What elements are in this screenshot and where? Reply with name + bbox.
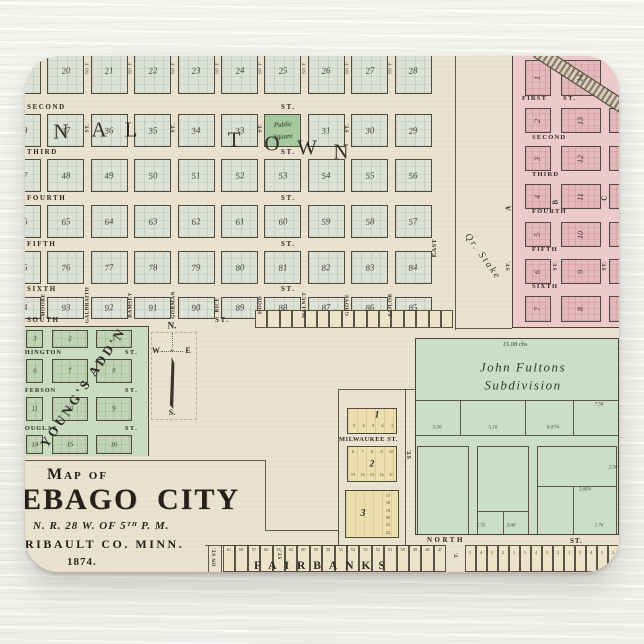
block-number: 55	[365, 171, 375, 181]
block-number: 14	[577, 74, 585, 82]
lot-number: 49	[413, 547, 417, 552]
measurement: 2.55	[477, 524, 486, 529]
street-width-note: 80 F	[215, 62, 221, 74]
block-number: 4	[534, 195, 542, 199]
block-number: 21	[104, 66, 114, 76]
street-label: SOUTH	[27, 317, 60, 324]
block-number: 59	[321, 217, 331, 227]
fultons-area-note: 15.08 chs	[503, 342, 528, 349]
lot-line	[503, 511, 504, 535]
boundary-line	[265, 460, 266, 530]
block-number: 2	[370, 460, 375, 469]
lot-number: 10	[389, 449, 393, 454]
block-number: 35	[148, 126, 158, 136]
block-number: 60	[278, 217, 288, 227]
fairbanks-label: FAIRBANKS	[254, 561, 393, 572]
street-suffix-vertical: ST.	[279, 551, 284, 560]
lot-number: 57	[252, 547, 256, 552]
north-street-label: NORTH	[427, 537, 465, 544]
lot-number: 4	[590, 550, 592, 555]
measurement: 2.50	[609, 466, 618, 471]
block-number: 1	[534, 76, 542, 80]
milwaukee-block	[345, 490, 399, 538]
compass-west-label: W	[152, 347, 160, 355]
block-number: 53	[278, 171, 288, 181]
block-number: 62	[191, 217, 201, 227]
block-number: 83	[365, 263, 375, 273]
lot-number: 14	[360, 472, 364, 477]
block-number: 2	[68, 335, 72, 342]
street-letter: A	[506, 205, 513, 211]
fultons-name-line2: Subdivision	[484, 379, 561, 392]
lot-number: 54	[351, 547, 355, 552]
street-letter: B	[553, 199, 560, 204]
street-label-vertical: GROVE	[345, 294, 350, 316]
town-block	[609, 259, 619, 284]
lot	[267, 310, 279, 328]
lot	[429, 310, 441, 328]
street-suffix-vertical: ST.	[172, 123, 178, 132]
block-number: 63	[148, 217, 158, 227]
street-width-note: 80 F	[389, 62, 395, 74]
street-width-note: 80 F	[128, 62, 134, 74]
block-number: 64	[104, 217, 114, 227]
lot	[329, 310, 341, 328]
lot-line	[525, 400, 526, 435]
lot-number: 52	[376, 547, 380, 552]
block-number: 65	[61, 217, 71, 227]
block-number: 79	[191, 263, 201, 273]
street-suffix: ST.	[281, 104, 296, 111]
measurement: 5.16	[489, 426, 498, 431]
lot-number: 66	[264, 547, 268, 552]
street-line	[208, 545, 209, 572]
lot-number: 6	[352, 449, 354, 454]
street-label-vertical: HOOD	[258, 296, 263, 314]
block-number: 2	[534, 119, 542, 123]
block-number: 20	[61, 66, 71, 76]
compass-north-label: N.	[168, 322, 177, 331]
street-letter: C	[602, 195, 609, 201]
street-label: FOURTH	[532, 209, 567, 216]
block-number: 3	[534, 157, 542, 161]
block-number: 26	[321, 66, 331, 76]
town-name-letter: O	[264, 134, 279, 155]
town-name-letter: N	[333, 142, 348, 163]
block-number: 29	[408, 126, 418, 136]
lot-number: 63	[289, 547, 293, 552]
lot-number: 7	[361, 449, 363, 454]
block-number: 1	[375, 411, 380, 420]
street-suffix-vertical: ST.	[407, 449, 413, 459]
street-suffix-vertical: ST.	[258, 123, 264, 132]
compass-east-label: E	[185, 347, 190, 355]
lot-number: 20	[386, 515, 390, 520]
lot-number: 12	[379, 472, 383, 477]
product-photo-background: N. W + E S. Qr. Stake YOUNG'S ADD'N 15.0…	[0, 0, 644, 644]
town-block	[609, 222, 619, 247]
block-number: 50	[148, 171, 158, 181]
lot-number: 59	[314, 547, 318, 552]
lot-number: 3	[601, 550, 603, 555]
lot-number: 47	[438, 547, 442, 552]
lot-line	[537, 486, 617, 487]
block-number: 28	[408, 66, 418, 76]
block-number: 75	[25, 263, 27, 273]
map-title-city-right: CITY	[157, 485, 240, 515]
street-label: HINGTON	[25, 350, 62, 356]
north-street-suffix: ST.	[570, 538, 583, 545]
street-label-vertical: SAILOR	[389, 293, 394, 316]
block-number: 16	[110, 441, 118, 449]
block-number: 10	[66, 405, 74, 413]
lot-number: 4	[535, 550, 537, 555]
lot-number: 2	[381, 423, 383, 428]
measurement: 6.07¾	[547, 426, 560, 431]
street-line	[221, 545, 222, 572]
town-block	[609, 184, 619, 209]
block-number: 34	[191, 126, 201, 136]
lot-number: 8	[371, 449, 373, 454]
boundary-line	[265, 530, 338, 531]
lot-number: 11	[389, 472, 393, 477]
compass-needle-line	[172, 333, 173, 347]
public-square-label: Public	[274, 121, 293, 129]
block-number: 58	[365, 217, 375, 227]
street-suffix: ST.	[281, 195, 296, 202]
block-number: 93	[61, 303, 71, 313]
block-number: 10	[577, 231, 585, 239]
street-width-note: 80 F	[258, 62, 264, 74]
street-suffix: ST.	[563, 96, 577, 103]
lot-number: 17	[386, 493, 390, 498]
street-label: OUGLAS	[25, 426, 57, 432]
lot-number: 4	[480, 550, 482, 555]
street-width-note: 80 F	[345, 62, 351, 74]
lot-number: 48	[425, 547, 429, 552]
street-line	[405, 389, 406, 545]
lot-line	[415, 400, 619, 401]
lot-number: 9	[380, 449, 382, 454]
lot-number: 2	[557, 550, 559, 555]
lot-number: 1	[391, 423, 393, 428]
block-number: 76	[61, 263, 71, 273]
block-number: 3	[361, 509, 366, 519]
lot-number: 5	[353, 423, 355, 428]
block-number: 8	[577, 307, 585, 311]
town-name-letter: A	[91, 120, 106, 141]
block-number: 27	[365, 66, 375, 76]
block-number: 89	[235, 303, 245, 313]
fulton-lot	[537, 446, 617, 535]
lot-number: 13	[370, 472, 374, 477]
street-suffix: ST.	[125, 426, 138, 432]
block-number: 81	[278, 263, 288, 273]
street-suffix: ST.	[281, 241, 296, 248]
block-number: 49	[104, 171, 114, 181]
boundary-line	[25, 460, 265, 461]
street-label: SECOND	[27, 104, 66, 111]
map-title-county: RIBAULT CO. MINN.	[25, 538, 184, 550]
town-name-letter: L	[125, 120, 138, 141]
block-number: 5	[534, 233, 542, 237]
block-number: 57	[408, 217, 418, 227]
block-number: 88	[278, 303, 288, 313]
map-title-city-left: EBAGO	[25, 485, 139, 515]
block-number: 19	[25, 66, 27, 76]
street-suffix-vertical: ST.	[85, 123, 91, 132]
lot-number: 3	[546, 550, 548, 555]
block-number: 22	[148, 66, 158, 76]
lot-number: 18	[386, 500, 390, 505]
street-width-note: 80 F	[302, 62, 308, 74]
block-number: 13	[577, 117, 585, 125]
block-number: 12	[577, 155, 585, 163]
town-block	[609, 146, 619, 171]
block-number: 9	[577, 270, 585, 274]
road-label: Qr. Stake	[462, 232, 502, 282]
street-suffix: ST.	[125, 388, 138, 394]
block-number: 82	[321, 263, 331, 273]
block-number: 11	[31, 405, 38, 413]
lot-number: 15	[351, 472, 355, 477]
block-number: 77	[104, 263, 114, 273]
block-number: 24	[235, 66, 245, 76]
lot-number: 2	[612, 550, 614, 555]
street-suffix: ST.	[125, 350, 138, 356]
street-label: FIFTH	[532, 247, 558, 254]
block-number: 52	[235, 171, 245, 181]
measurement: 5.00	[507, 524, 516, 529]
lot-number: 5	[524, 550, 526, 555]
lot	[441, 310, 453, 328]
block-number: 48	[61, 171, 71, 181]
block-number: 91	[148, 303, 158, 313]
block-number: 51	[191, 171, 201, 181]
street-label: SECOND	[532, 135, 566, 142]
street-label: THIRD	[532, 172, 559, 179]
town-name-letter: N	[53, 122, 68, 143]
street-suffix-vertical: ST.	[345, 123, 351, 132]
street-label-vertical: EAST	[432, 239, 439, 258]
lot-number: 22	[386, 530, 390, 535]
map-title-year: 1874.	[67, 557, 97, 568]
street-suffix-vertical: ST.	[506, 261, 512, 270]
street-label-vertical: ON ST.	[213, 548, 218, 567]
boundary-line	[455, 328, 512, 329]
street-width-note: 80 F	[85, 62, 91, 74]
block-number: 9	[112, 405, 116, 412]
block-number: 14	[31, 441, 39, 449]
lot-number: 5	[579, 550, 581, 555]
lot-number: 2	[502, 550, 504, 555]
block-number: 56	[408, 171, 418, 181]
lot-number: 55	[339, 547, 343, 552]
block-number: 85	[408, 303, 418, 313]
block-number: 25	[278, 66, 288, 76]
block-number: 11	[577, 193, 585, 200]
lot-line	[573, 486, 574, 535]
street-label-vertical: GALBRAITH	[85, 287, 90, 324]
boundary-line	[338, 389, 339, 545]
lot-number: 53	[363, 547, 367, 552]
block-number: 90	[191, 303, 201, 313]
lot	[416, 310, 428, 328]
lot-number: 68	[239, 547, 243, 552]
lot-line	[573, 400, 574, 435]
block-number: 66	[25, 217, 27, 227]
lot-number: 1	[568, 550, 570, 555]
lot-number: 51	[388, 547, 392, 552]
map-title-township: N. R. 28 W. OF 5ᵀᴴ P. M.	[33, 521, 169, 532]
block-number: 87	[321, 303, 331, 313]
street-suffix-vertical: ST.	[602, 261, 608, 270]
block-number: 80	[235, 263, 245, 273]
measurement: 2.60¾	[579, 488, 592, 493]
lot-number: 4	[362, 423, 364, 428]
lot-number: 5	[469, 550, 471, 555]
block-number: 8	[112, 367, 116, 374]
lot-line	[415, 435, 619, 436]
block-number: 1	[112, 335, 116, 342]
block-number: 86	[365, 303, 375, 313]
block-number: 7	[68, 367, 72, 374]
lot	[354, 310, 366, 328]
lot-number: 3	[491, 550, 493, 555]
lot-number: 1	[513, 550, 515, 555]
compass-cross: +	[170, 348, 174, 355]
lot-number: 60	[301, 547, 305, 552]
street-suffix: ST.	[281, 149, 296, 156]
lot-number: 3	[372, 423, 374, 428]
map-title-prefix: Map of	[47, 467, 108, 483]
town-name-letter: T	[228, 130, 241, 151]
block-number: 6	[32, 367, 36, 374]
lot-number: 61	[227, 547, 231, 552]
street-label: FOURTH	[27, 195, 66, 202]
street-label: SIXTH	[27, 286, 57, 293]
block-number: 38	[25, 126, 27, 136]
town-block	[609, 296, 619, 322]
street-label-vertical: WALNUT	[302, 292, 307, 318]
milwaukee-block	[347, 408, 397, 434]
block-number: 94	[25, 303, 27, 313]
street-label: THIRD	[27, 149, 58, 156]
winnebago-city-plat-map: N. W + E S. Qr. Stake YOUNG'S ADD'N 15.0…	[25, 56, 619, 572]
block-number: 15	[66, 441, 74, 449]
block-number: 6	[534, 270, 542, 274]
measurement: 5.50	[433, 426, 442, 431]
block-number: 92	[104, 303, 114, 313]
block-number: 78	[148, 263, 158, 273]
boundary-line	[338, 389, 415, 390]
milwaukee-street-label: MILWAUKEE ST.	[339, 437, 398, 443]
block-number: 23	[191, 66, 201, 76]
lot-number: 50	[401, 547, 405, 552]
street-label-vertical: T.	[454, 552, 460, 558]
town-name-letter: W	[297, 138, 317, 159]
block-number: 7	[534, 307, 542, 311]
fultons-name-line1: John Fultons	[480, 361, 566, 374]
street-label-vertical: MOORE	[41, 294, 46, 317]
block-number: 31	[321, 126, 331, 136]
street-label: FERSON	[25, 388, 56, 394]
street-label: FIFTH	[27, 241, 56, 248]
lot-line	[460, 400, 461, 435]
street-label: FIRST	[522, 96, 547, 103]
lot-number: 19	[386, 508, 390, 513]
block-number: 54	[321, 171, 331, 181]
road-line	[455, 56, 456, 330]
lot-number: 21	[386, 522, 390, 527]
block-number: 3	[32, 335, 36, 342]
block-number: 84	[408, 263, 418, 273]
fulton-lot	[417, 446, 469, 535]
street-suffix-vertical: ST.	[553, 261, 559, 270]
street-suffix: ST.	[215, 317, 230, 324]
block-number: 61	[235, 217, 245, 227]
street-line	[205, 545, 445, 546]
compass-south-label: S.	[169, 409, 175, 417]
street-label: SIXTH	[532, 284, 558, 291]
block-number: 30	[365, 126, 375, 136]
street-label-vertical: RICE	[215, 297, 220, 312]
measurement: 2.76	[595, 524, 604, 529]
measurement: 7.58	[595, 403, 604, 408]
street-label-vertical: RAMSEY	[128, 292, 133, 318]
street-suffix: ST.	[281, 286, 296, 293]
lot-number: 58	[326, 547, 330, 552]
mousepad: N. W + E S. Qr. Stake YOUNG'S ADD'N 15.0…	[25, 56, 619, 572]
street-width-note: 80 F	[172, 62, 178, 74]
street-label-vertical: GORMAN	[172, 291, 177, 319]
lot	[280, 310, 292, 328]
block-number: 47	[25, 171, 27, 181]
